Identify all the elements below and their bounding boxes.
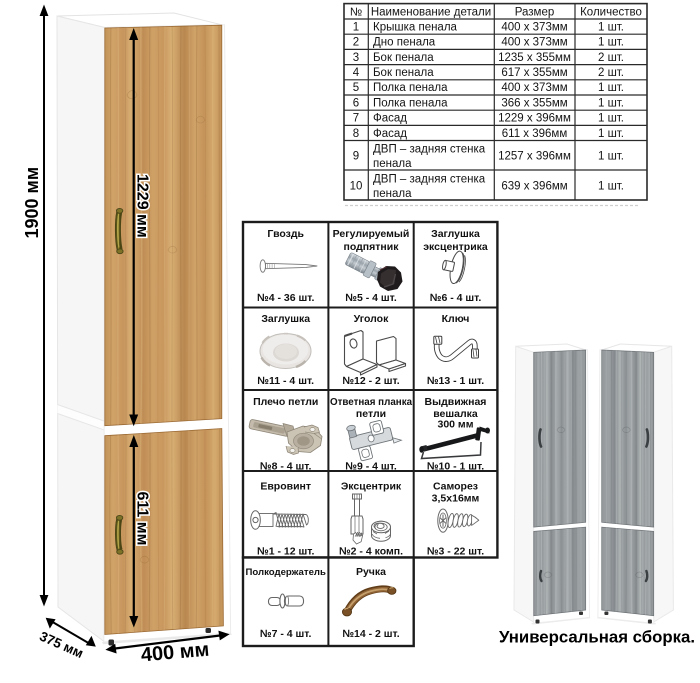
svg-text:Универсальная сборка.: Универсальная сборка. <box>499 628 695 647</box>
svg-text:1 шт.: 1 шт. <box>598 128 624 140</box>
svg-text:400 х 373мм: 400 х 373мм <box>501 21 567 33</box>
svg-text:617 х 355мм: 617 х 355мм <box>501 67 567 79</box>
svg-text:6: 6 <box>353 97 359 109</box>
svg-text:Ручка: Ручка <box>356 566 386 578</box>
svg-text:ДВП – задняя стенка: ДВП – задняя стенка <box>373 174 486 186</box>
svg-text:ДВП – задняя стенка: ДВП – задняя стенка <box>373 144 486 156</box>
svg-text:№11 - 4 шт.: №11 - 4 шт. <box>257 375 314 387</box>
svg-text:2 шт.: 2 шт. <box>598 67 624 79</box>
svg-text:№10 - 1 шт.: №10 - 1 шт. <box>427 461 484 473</box>
svg-text:3,5х16мм: 3,5х16мм <box>432 493 480 505</box>
svg-text:1 шт.: 1 шт. <box>598 21 624 33</box>
svg-text:400 х 373мм: 400 х 373мм <box>501 82 567 94</box>
svg-text:611 мм: 611 мм <box>134 492 151 546</box>
svg-text:1: 1 <box>353 21 359 33</box>
svg-text:Бок пенала: Бок пенала <box>373 67 434 79</box>
svg-text:Плечо петли: Плечо петли <box>253 396 318 408</box>
svg-text:Заглушка: Заглушка <box>431 228 480 240</box>
svg-text:639 х 396мм: 639 х 396мм <box>501 180 567 192</box>
svg-text:300 мм: 300 мм <box>438 419 474 431</box>
svg-text:366 х 355мм: 366 х 355мм <box>501 97 567 109</box>
svg-text:9: 9 <box>353 150 359 162</box>
svg-text:611 х 396мм: 611 х 396мм <box>502 128 568 140</box>
svg-text:1900 мм: 1900 мм <box>22 167 42 239</box>
svg-text:Размер: Размер <box>515 6 555 18</box>
svg-text:№3 - 22 шт.: №3 - 22 шт. <box>427 546 484 558</box>
svg-text:Выдвижная: Выдвижная <box>425 396 487 408</box>
svg-text:Заглушка: Заглушка <box>261 313 310 325</box>
svg-text:№1 - 12 шт.: №1 - 12 шт. <box>257 546 314 558</box>
svg-text:№2 - 4 комп.: №2 - 4 комп. <box>339 546 403 558</box>
svg-text:1229 мм: 1229 мм <box>133 174 150 238</box>
svg-text:Фасад: Фасад <box>373 113 407 125</box>
svg-text:Полкодержатель: Полкодержатель <box>245 567 326 578</box>
svg-text:Полка пенала: Полка пенала <box>373 82 448 94</box>
svg-text:№7 - 4 шт.: №7 - 4 шт. <box>260 628 312 640</box>
svg-text:10: 10 <box>350 180 363 192</box>
svg-text:Гвоздь: Гвоздь <box>267 228 304 240</box>
svg-text:5: 5 <box>353 82 359 94</box>
svg-text:1 шт.: 1 шт. <box>598 37 624 49</box>
svg-text:2 шт.: 2 шт. <box>598 52 624 64</box>
svg-text:Крышка пенала: Крышка пенала <box>373 21 458 33</box>
svg-text:Ответная планка: Ответная планка <box>330 397 413 408</box>
svg-text:375 мм: 375 мм <box>37 629 85 662</box>
svg-text:№5 - 4 шт.: №5 - 4 шт. <box>345 292 397 304</box>
svg-text:1257 х 396мм: 1257 х 396мм <box>498 150 571 162</box>
svg-text:петли: петли <box>356 408 386 420</box>
svg-text:Эксцентрик: Эксцентрик <box>341 481 402 493</box>
svg-text:Наименование детали: Наименование детали <box>371 6 491 18</box>
svg-text:Фасад: Фасад <box>373 128 407 140</box>
svg-text:1229 х 396мм: 1229 х 396мм <box>498 113 571 125</box>
svg-text:Ключ: Ключ <box>442 313 470 325</box>
svg-text:7: 7 <box>353 113 359 125</box>
svg-text:№12 - 2 шт.: №12 - 2 шт. <box>342 375 399 387</box>
svg-text:2: 2 <box>353 37 359 49</box>
svg-text:№8 - 4 шт.: №8 - 4 шт. <box>260 461 312 473</box>
svg-text:1 шт.: 1 шт. <box>598 113 624 125</box>
svg-text:3: 3 <box>353 52 359 64</box>
svg-text:Евровинт: Евровинт <box>260 481 311 493</box>
svg-text:8: 8 <box>353 128 359 140</box>
svg-text:пенала: пенала <box>373 188 412 200</box>
svg-text:Бок пенала: Бок пенала <box>373 52 434 64</box>
svg-text:№13 - 1 шт.: №13 - 1 шт. <box>427 375 484 387</box>
svg-text:1 шт.: 1 шт. <box>598 97 624 109</box>
svg-text:№6 - 4 шт.: №6 - 4 шт. <box>430 292 482 304</box>
svg-text:Уголок: Уголок <box>354 313 389 325</box>
svg-text:1 шт.: 1 шт. <box>598 180 624 192</box>
svg-text:№9 - 4 шт.: №9 - 4 шт. <box>345 461 397 473</box>
svg-text:1 шт.: 1 шт. <box>598 150 624 162</box>
svg-text:400 мм: 400 мм <box>140 639 210 667</box>
svg-text:эксцентрика: эксцентрика <box>423 241 488 253</box>
svg-text:Регулируемый: Регулируемый <box>333 228 410 240</box>
svg-text:Саморез: Саморез <box>433 481 478 493</box>
svg-text:пенала: пенала <box>373 158 412 170</box>
svg-text:1235 х 355мм: 1235 х 355мм <box>498 52 571 64</box>
svg-text:Количество: Количество <box>580 6 642 18</box>
svg-text:4: 4 <box>353 67 360 79</box>
svg-text:№: № <box>350 6 362 18</box>
svg-text:Полка пенала: Полка пенала <box>373 97 448 109</box>
svg-text:400 х 373мм: 400 х 373мм <box>501 37 567 49</box>
svg-text:№4 - 36 шт.: №4 - 36 шт. <box>257 292 314 304</box>
svg-text:Дно пенала: Дно пенала <box>373 37 436 49</box>
svg-text:подпятник: подпятник <box>344 241 400 253</box>
svg-text:1 шт.: 1 шт. <box>598 82 624 94</box>
svg-text:№14 - 2 шт.: №14 - 2 шт. <box>342 628 399 640</box>
